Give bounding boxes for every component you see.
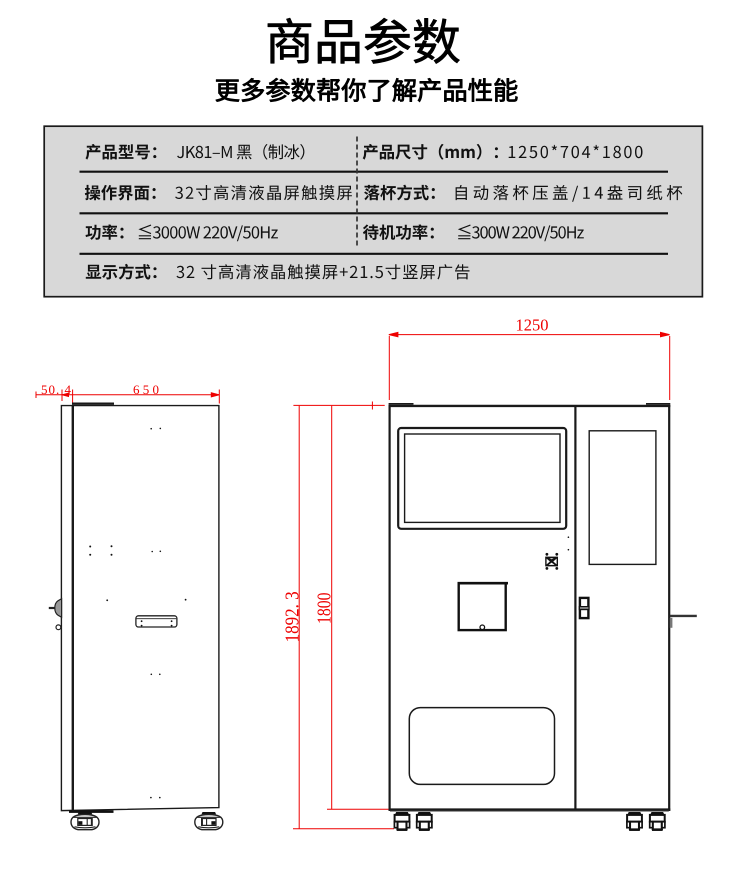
svg-text:1800: 1800	[314, 593, 336, 625]
svg-text:1892. 3: 1892. 3	[281, 591, 303, 642]
svg-text:1250: 1250	[516, 316, 549, 335]
svg-text:50. 4: 50. 4	[41, 382, 72, 397]
svg-text:650: 650	[133, 382, 159, 397]
